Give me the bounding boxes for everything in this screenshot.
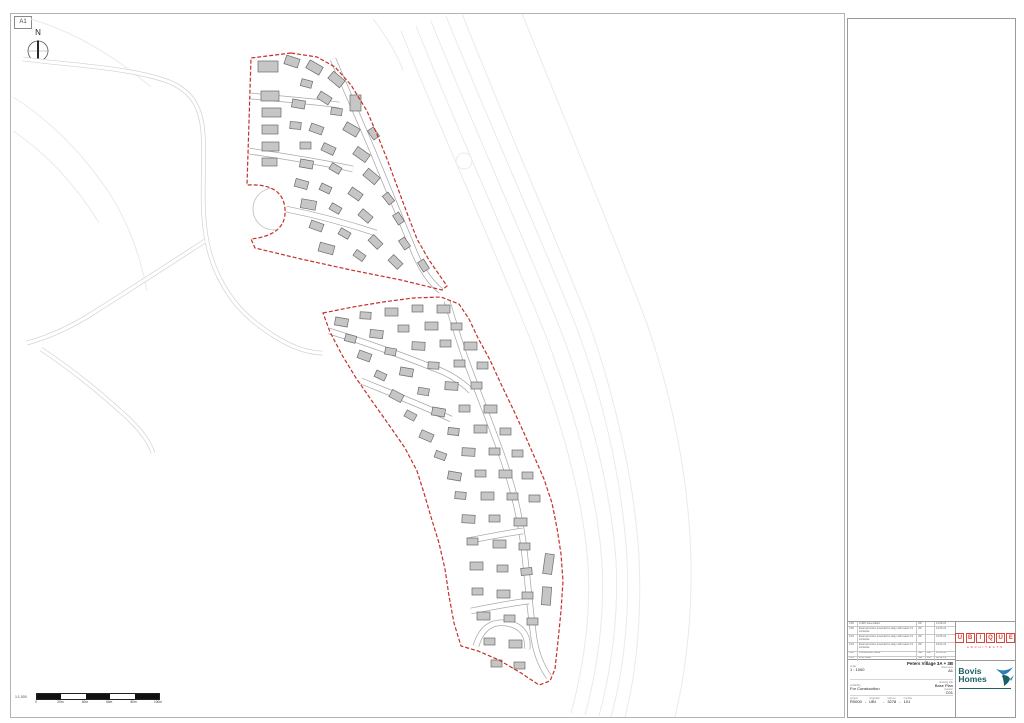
building-footprint	[261, 91, 279, 101]
title-block-info: scale 1 : 1000 Peters Village 3A + 3B sh…	[848, 660, 955, 717]
building-footprint	[514, 518, 527, 526]
building-footprint	[448, 427, 460, 435]
revision-cell: External works amended to align with lat…	[858, 635, 917, 642]
building-footprint	[471, 382, 482, 389]
ubique-letter-box: E	[1006, 633, 1015, 643]
title-block-panel: C06LURP area addedJW21.08.24C05External …	[847, 18, 1016, 718]
revision-cell: JW	[917, 635, 926, 642]
ubique-architects-label: ARCHITECTS	[967, 645, 1004, 649]
drawing-number-part: volume3278	[887, 697, 896, 705]
contour-circle	[456, 153, 472, 169]
scale-field: scale 1 : 1000	[850, 665, 864, 673]
drawing-number-strip: projectR0000-originatorUBI-volume3278-nu…	[850, 697, 953, 705]
scale-bar-segment	[61, 694, 85, 699]
drawing-number-part: number101	[904, 697, 913, 705]
revision-cell: 12.01.24	[935, 652, 955, 656]
building-footprint	[507, 493, 518, 500]
revision-row: C04External works amended to align with …	[848, 635, 955, 643]
building-footprint	[470, 562, 483, 570]
building-footprint	[509, 640, 522, 648]
revision-cell: JW	[917, 622, 926, 626]
project-title-field: Peters Village 3A + 3B sheet size A1	[907, 662, 953, 674]
revision-row: C03External works amended to align with …	[848, 643, 955, 651]
revision-cell: 21.08.24	[935, 622, 955, 626]
building-footprint	[484, 405, 497, 413]
building-footprint	[521, 568, 533, 576]
building-footprint	[459, 405, 470, 412]
building-footprint	[290, 122, 302, 130]
ubique-letter-box: U	[955, 633, 964, 643]
building-footprint	[440, 340, 451, 347]
revision-cell: C05	[848, 627, 858, 634]
revision-cell: C04	[848, 635, 858, 642]
building-footprint	[300, 142, 311, 149]
revision-cell: C02	[848, 652, 858, 656]
building-footprint	[331, 107, 343, 115]
building-footprint	[464, 342, 477, 350]
bovis-magpie-icon	[994, 665, 1016, 687]
revision-cell: 19.04.24	[935, 643, 955, 650]
building-footprint	[522, 592, 533, 599]
building-footprint	[481, 492, 494, 500]
sheet-size-value: A1	[907, 669, 953, 674]
building-footprint	[514, 662, 525, 669]
building-footprint	[522, 472, 533, 479]
site-plan-svg	[11, 14, 844, 717]
drawing-number-value: 101	[904, 700, 913, 705]
building-footprint	[437, 305, 450, 313]
revision-cell: JW	[917, 643, 926, 650]
existing-road-casing	[27, 241, 205, 343]
title-block-left-column: C06LURP area addedJW21.08.24C05External …	[848, 622, 956, 717]
building-footprint	[417, 387, 429, 396]
ubique-letter-box: B	[966, 633, 975, 643]
building-footprint	[499, 470, 512, 478]
revision-cell	[926, 643, 935, 650]
building-footprint	[360, 312, 371, 320]
revision-cell	[926, 622, 935, 626]
bovis-homes-logo: Bovis Homes	[956, 661, 1015, 717]
scale-bar-tick-label: 0	[35, 700, 37, 704]
contour-line	[373, 19, 403, 71]
revision-cell: 14.06.24	[935, 627, 955, 634]
building-footprint	[474, 425, 487, 433]
building-footprint	[500, 428, 511, 435]
drawing-number-value: UBI	[869, 700, 880, 705]
drawing-title-field: drawing title Base Plan revision C01	[935, 681, 953, 696]
building-footprint	[262, 142, 279, 151]
building-footprint	[385, 308, 398, 316]
bovis-rule	[959, 688, 1011, 689]
revision-cell: JW	[917, 627, 926, 634]
building-footprint	[529, 495, 540, 502]
scale-bar-tick-label: 80m	[130, 700, 136, 704]
building-footprint	[477, 362, 488, 369]
ubique-wordmark: UBIQUE	[955, 633, 1015, 643]
revision-cell: NW	[917, 652, 926, 656]
building-footprint	[262, 158, 277, 166]
contour-line	[31, 19, 151, 87]
drawing-number-part: projectR0000	[850, 697, 862, 705]
building-footprint	[462, 515, 475, 524]
building-footprint	[398, 325, 409, 332]
revision-cell: Construction issue	[858, 652, 917, 656]
drawing-number-part: originatorUBI	[869, 697, 880, 705]
building-footprint	[412, 342, 425, 351]
building-footprint	[493, 540, 506, 548]
revision-cell	[926, 627, 935, 634]
building-footprint	[512, 450, 523, 457]
building-footprint	[527, 618, 538, 625]
building-footprint	[384, 347, 396, 356]
drawing-number-separator: -	[882, 699, 885, 704]
revision-cell: LURP area added	[858, 622, 917, 626]
ubique-letter-box: Q	[986, 633, 995, 643]
building-footprint	[541, 587, 551, 606]
revision-row: C05External works amended to align with …	[848, 627, 955, 635]
building-footprint	[451, 323, 462, 330]
existing-road	[41, 349, 153, 453]
building-footprint	[370, 329, 384, 338]
building-footprint	[455, 492, 467, 500]
revision-cell: AH	[926, 652, 935, 656]
scale-bar-track	[36, 693, 160, 700]
building-footprint	[262, 125, 278, 134]
building-footprint	[445, 382, 458, 391]
building-footprint	[489, 448, 500, 455]
building-footprint	[262, 108, 281, 117]
info-row-drawing-number: projectR0000-originatorUBI-volume3278-nu…	[850, 695, 953, 709]
building-footprint	[350, 95, 361, 111]
revision-cell: C03	[848, 643, 858, 650]
scale-bar-tick-label: 20m	[57, 700, 63, 704]
scale-bar-tick-label: 100m	[154, 700, 162, 704]
building-footprint	[497, 590, 510, 598]
title-block-logo-column: UBIQUE ARCHITECTS Bovis Homes	[956, 622, 1015, 717]
revision-cell: External works amended to align with lat…	[858, 643, 917, 650]
scale-bar-segment	[110, 694, 134, 699]
suitability-field: suitability For Construction	[850, 684, 880, 692]
building-footprint	[477, 612, 490, 620]
scale-bar-segment	[135, 694, 159, 699]
scale-value: 1 : 1000	[850, 668, 864, 673]
drawing-sheet: A1 N 1:1,000 020m40m60m80m100m C06LURP a…	[0, 0, 1024, 723]
building-footprint	[484, 638, 495, 645]
contour-line	[13, 131, 99, 223]
scale-bar-tick-labels: 020m40m60m80m100m	[36, 700, 158, 708]
suitability-value: For Construction	[850, 687, 880, 692]
scale-bar-tick-label: 40m	[82, 700, 88, 704]
contour-line	[13, 97, 147, 291]
drawing-number-separator: -	[864, 699, 867, 704]
building-footprint	[412, 305, 423, 312]
revision-cell	[926, 635, 935, 642]
building-footprint	[504, 615, 515, 622]
main-drawing-area: A1 N 1:1,000 020m40m60m80m100m	[10, 13, 845, 718]
scale-bar-segment	[37, 694, 61, 699]
existing-road-casing	[41, 349, 153, 453]
building-footprint	[454, 360, 465, 367]
building-footprint	[472, 588, 483, 595]
scale-bar-tick-label: 60m	[106, 700, 112, 704]
revision-cell: 31.05.24	[935, 635, 955, 642]
building-footprint	[497, 565, 508, 572]
revision-cell: External works amended to align with lat…	[858, 627, 917, 634]
scale-bar-segment	[86, 694, 110, 699]
revision-table: C06LURP area addedJW21.08.24C05External …	[848, 622, 955, 660]
ubique-logo: UBIQUE ARCHITECTS	[956, 622, 1015, 661]
revision-cell: C06	[848, 622, 858, 626]
building-footprint	[258, 61, 278, 72]
building-footprint	[519, 543, 530, 550]
building-footprint	[467, 538, 478, 545]
info-row-scale-title: scale 1 : 1000 Peters Village 3A + 3B sh…	[850, 662, 953, 679]
building-footprint	[428, 362, 439, 370]
ubique-letter-box: I	[976, 633, 985, 643]
building-footprint	[425, 322, 438, 330]
drawing-number-value: R0000	[850, 700, 862, 705]
scale-bar-ratio-label: 1:1,000	[15, 695, 27, 699]
building-footprint	[462, 448, 475, 457]
title-block-bottom: C06LURP area addedJW21.08.24C05External …	[848, 621, 1015, 717]
building-footprint	[489, 515, 500, 522]
building-footprint	[475, 470, 486, 477]
drawing-number-separator: -	[898, 699, 901, 704]
info-row-suitability-drawing: suitability For Construction drawing tit…	[850, 679, 953, 696]
ubique-letter-box: U	[996, 633, 1005, 643]
drawing-number-value: 3278	[887, 700, 896, 705]
scale-bar: 1:1,000 020m40m60m80m100m	[13, 686, 183, 712]
